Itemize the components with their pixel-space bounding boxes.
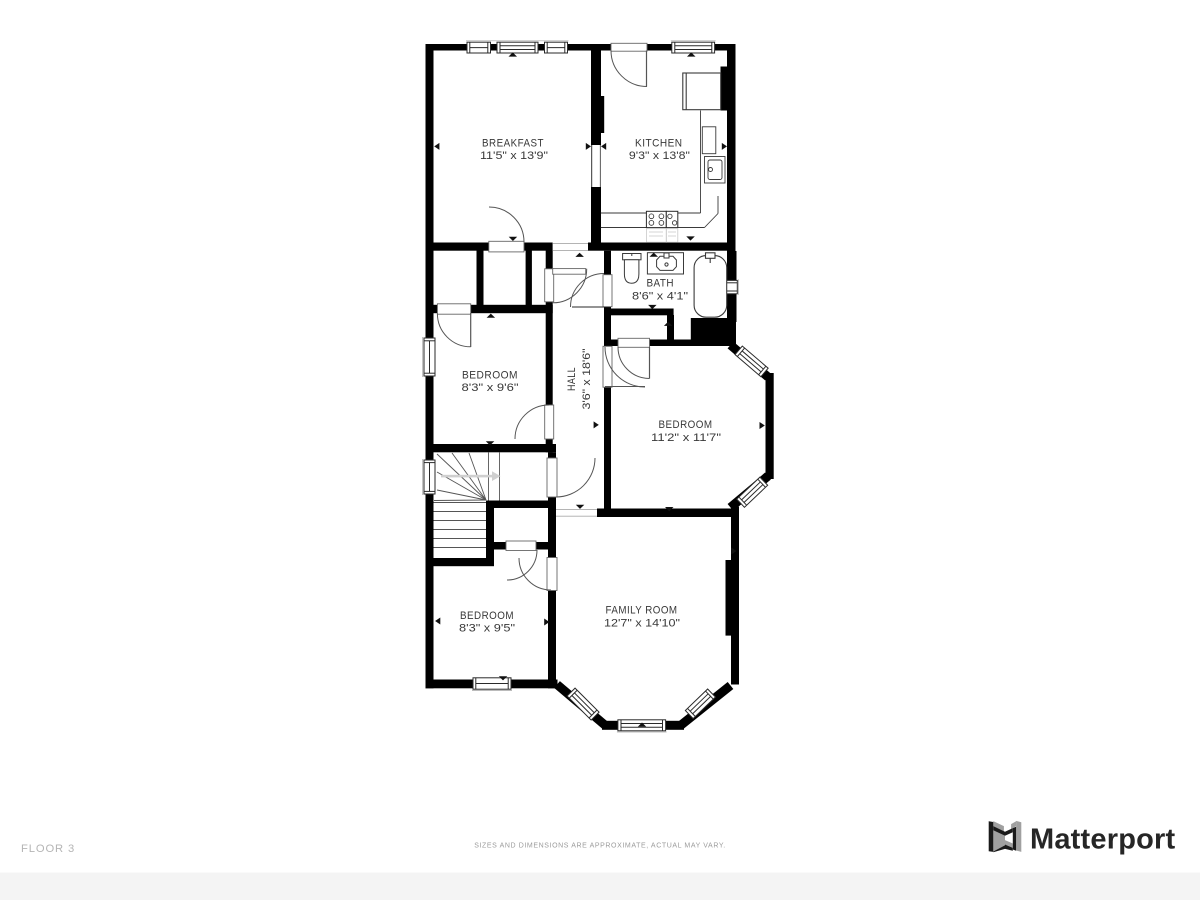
svg-text:BEDROOM: BEDROOM — [460, 610, 514, 622]
svg-text:FLOOR 3: FLOOR 3 — [21, 843, 75, 855]
svg-text:9'3" x 13'8": 9'3" x 13'8" — [629, 150, 690, 162]
svg-text:BATH: BATH — [646, 278, 674, 290]
svg-text:8'3" x 9'6": 8'3" x 9'6" — [462, 382, 519, 394]
svg-text:11'2" x 11'7": 11'2" x 11'7" — [651, 432, 721, 444]
svg-text:BREAKFAST: BREAKFAST — [482, 138, 544, 150]
svg-text:8'3" x 9'5": 8'3" x 9'5" — [459, 623, 515, 635]
svg-text:11'5" x 13'9": 11'5" x 13'9" — [480, 150, 548, 162]
svg-text:FAMILY ROOM: FAMILY ROOM — [606, 605, 678, 617]
svg-text:HALL: HALL — [566, 367, 578, 391]
svg-text:Matterport: Matterport — [1030, 824, 1176, 856]
svg-text:BEDROOM: BEDROOM — [659, 419, 713, 431]
svg-text:KITCHEN: KITCHEN — [635, 138, 683, 150]
svg-text:BEDROOM: BEDROOM — [462, 369, 518, 381]
svg-text:12'7" x 14'10": 12'7" x 14'10" — [604, 617, 680, 629]
svg-text:3'6" x 18'6": 3'6" x 18'6" — [581, 348, 593, 409]
svg-text:8'6" x 4'1": 8'6" x 4'1" — [632, 290, 688, 302]
svg-text:SIZES AND DIMENSIONS ARE APPRO: SIZES AND DIMENSIONS ARE APPROXIMATE, AC… — [474, 842, 726, 849]
